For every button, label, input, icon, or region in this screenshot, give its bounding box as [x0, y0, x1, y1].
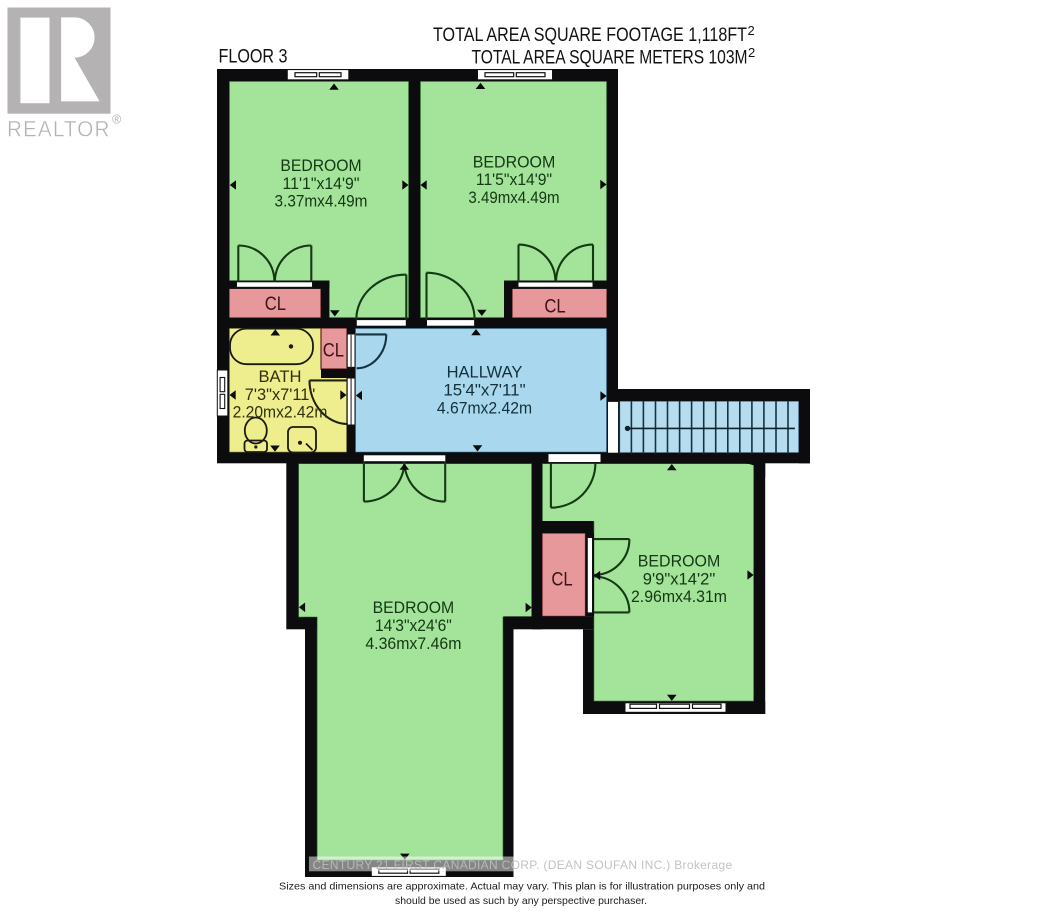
svg-text:CENTURY 21 FIRST CANADIAN CORP: CENTURY 21 FIRST CANADIAN CORP. (DEAN SO… — [313, 859, 733, 872]
svg-text:HALLWAY: HALLWAY — [447, 364, 523, 382]
svg-text:®: ® — [112, 112, 122, 126]
svg-text:TOTAL AREA SQUARE METERS 103M: TOTAL AREA SQUARE METERS 103M — [472, 48, 748, 69]
svg-text:2.96mx4.31m: 2.96mx4.31m — [631, 588, 727, 606]
svg-text:REALTOR: REALTOR — [7, 117, 111, 142]
svg-text:4.67mx2.42m: 4.67mx2.42m — [437, 399, 532, 417]
svg-text:15'4"x7'11": 15'4"x7'11" — [443, 381, 525, 399]
svg-text:BEDROOM: BEDROOM — [638, 552, 721, 570]
svg-text:BEDROOM: BEDROOM — [280, 157, 361, 175]
svg-text:7'3"x7'11": 7'3"x7'11" — [245, 386, 316, 404]
svg-text:should be used as such by any: should be used as such by any perspectiv… — [395, 896, 647, 907]
svg-text:11'5"x14'9": 11'5"x14'9" — [476, 171, 552, 189]
svg-text:BEDROOM: BEDROOM — [373, 599, 455, 617]
svg-text:BEDROOM: BEDROOM — [473, 153, 556, 171]
svg-text:2.20mx2.42m: 2.20mx2.42m — [233, 404, 328, 422]
svg-text:CL: CL — [323, 341, 344, 362]
svg-text:CL: CL — [551, 570, 572, 591]
svg-text:TOTAL AREA SQUARE FOOTAGE 1,11: TOTAL AREA SQUARE FOOTAGE 1,118FT — [433, 25, 747, 46]
svg-text:2: 2 — [748, 23, 755, 38]
svg-text:3.49mx4.49m: 3.49mx4.49m — [468, 189, 559, 207]
svg-text:4.36mx7.46m: 4.36mx7.46m — [365, 635, 461, 653]
svg-text:FLOOR 3: FLOOR 3 — [219, 46, 288, 68]
svg-text:BATH: BATH — [259, 368, 302, 386]
svg-text:CL: CL — [265, 294, 286, 315]
svg-text:14'3"x24'6": 14'3"x24'6" — [375, 617, 452, 635]
svg-text:11'1"x14'9": 11'1"x14'9" — [283, 175, 360, 193]
svg-text:CL: CL — [544, 297, 565, 318]
svg-text:2: 2 — [748, 45, 755, 60]
svg-text:3.37mx4.49m: 3.37mx4.49m — [275, 193, 368, 211]
svg-text:9'9"x14'2": 9'9"x14'2" — [643, 570, 716, 588]
svg-text:Sizes and dimensions are appro: Sizes and dimensions are approximate. Ac… — [279, 881, 765, 892]
